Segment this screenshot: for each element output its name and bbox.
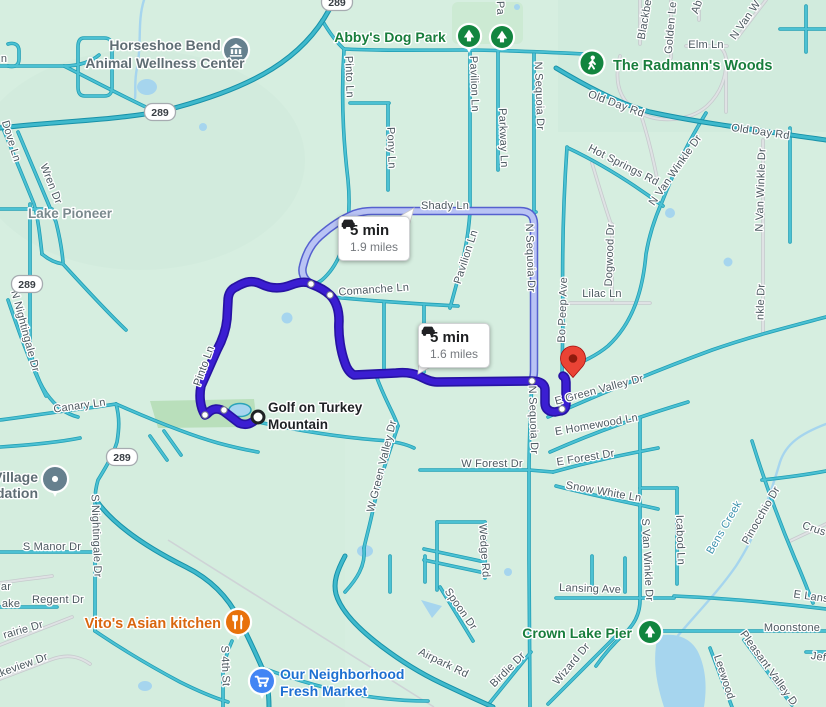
poi-park [489, 24, 515, 50]
street-label-pa: Pa [494, 1, 507, 16]
street-label-birdie-dr: Birdie Dr [488, 650, 528, 690]
street-label-jef: Jef [810, 650, 826, 664]
car-icon [339, 217, 357, 230]
street-label-snow-white-ln: Snow White Ln [565, 479, 643, 504]
svg-text:289: 289 [113, 452, 131, 464]
street-label-dogwood-dr: Dogwood Dr [603, 223, 617, 287]
street-label-s-4th-st: S 4th St [218, 645, 231, 686]
street-label-comanche-ln: Comanche Ln [338, 282, 409, 299]
street-label-w-green-valley-dr: W Green Valley Dr [365, 419, 399, 514]
street-label-regent-dr: Regent Dr [32, 594, 84, 606]
map-svg[interactable]: nDove LnWren DrN Nightingale DrCanary Ln… [0, 0, 826, 707]
street-label-n-sequoia-dr: N Sequoia Dr [526, 385, 540, 454]
street-label-n-sequoia-dr: N Sequoia Dr [532, 61, 546, 130]
street-label-spoon-dr: Spoon Dr [442, 586, 479, 632]
street-label-lansing-ave: Lansing Ave [559, 582, 621, 596]
svg-text:289: 289 [151, 107, 169, 119]
street-label-w-forest-dr: W Forest Dr [461, 458, 523, 470]
street-label-icabod-ln: Icabod Ln [673, 515, 687, 566]
poi-label-our-neighborhood-fresh-market: Our Neighborhood [280, 666, 404, 682]
street-label-s-manor-dr: S Manor Dr [23, 541, 81, 553]
street-label-n-van-winkle-dr: N Van Winkle Dr [754, 148, 769, 232]
car-icon [419, 324, 437, 337]
poi-golf-on-turkey-mountain: Golf on TurkeyMountain [268, 400, 363, 432]
street-label-parkway-ln: Parkway Ln [496, 108, 510, 168]
poi-label-golf-on-turkey-mountain: Golf on Turkey [268, 400, 363, 415]
poi-label-village-foundation: Village [0, 469, 38, 485]
street-label-n: n [1, 53, 7, 65]
park-tree-icon[interactable] [489, 24, 515, 50]
poi-label-golf-on-turkey-mountain: Mountain [268, 417, 328, 432]
street-label-e-lansi: E Lansi [793, 588, 826, 605]
street-label-wedge-rd: Wedge Rd [476, 524, 492, 578]
street-label-pavilion-ln: Pavilion Ln [467, 56, 481, 112]
poi-label-village-foundation: dation [0, 485, 38, 501]
crown-lake-pier-tree-icon[interactable] [637, 619, 663, 645]
route-info-alternate[interactable]: 5 min 1.9 miles [338, 216, 410, 261]
poi-label-abbys-dog-park: Abby's Dog Park [334, 29, 446, 45]
svg-text:289: 289 [18, 279, 36, 291]
poi-lake-pioneer: Lake Pioneer [28, 206, 113, 221]
highway-badge-289: 289 [12, 276, 43, 293]
street-label-n-nightingale-dr: N Nightingale Dr [8, 289, 41, 373]
poi-label-vitos-asian-kitchen: Vito's Asian kitchen [85, 616, 221, 632]
poi-label-our-neighborhood-fresh-market: Fresh Market [280, 683, 367, 699]
highway-badge-289: 289 [145, 104, 176, 121]
the-radmanns-woods-walk-icon[interactable] [578, 49, 605, 76]
street-label-moonstone: Moonstone [764, 622, 820, 634]
street-label-bens-creek: Bens Creek [704, 498, 744, 556]
street-label-leewood: Leewood [711, 653, 737, 701]
poi-label-horseshoe-bend-animal-wellness-center: Horseshoe Bend [109, 37, 220, 53]
highway-badge-289: 289 [107, 449, 138, 466]
street-label-shady-ln: Shady Ln [421, 200, 469, 212]
street-label-pleasant-valley-d: Pleasant Valley D [737, 629, 799, 707]
street-label-pavilion-ln: Pavilion Ln [452, 229, 481, 286]
street-label-nkle-dr: nkle Dr [754, 283, 767, 320]
poi-label-lake-pioneer: Lake Pioneer [28, 206, 113, 221]
highway-badge-289: 289 [322, 0, 353, 11]
poi-label-the-radmanns-woods: The Radmann's Woods [613, 58, 772, 74]
street-label-pinto-ln: Pinto Ln [342, 56, 355, 98]
street-label-elm-ln: Elm Ln [688, 39, 723, 51]
origin-marker[interactable] [252, 411, 264, 423]
alternate-distance: 1.9 miles [350, 240, 398, 254]
poi-label-crown-lake-pier: Crown Lake Pier [522, 625, 632, 641]
street-label-lilac-ln: Lilac Ln [582, 288, 622, 300]
svg-text:289: 289 [328, 0, 346, 9]
street-label-ake: ake [2, 598, 20, 610]
map-canvas[interactable]: nDove LnWren DrN Nightingale DrCanary Ln… [0, 0, 826, 707]
street-label-canary-ln: Canary Ln [53, 396, 107, 415]
street-label-pony-ln: Pony Ln [384, 127, 397, 169]
poi-crown-lake-pier: Crown Lake Pier [522, 619, 663, 645]
route-info-selected[interactable]: 5 min 1.6 miles [418, 323, 490, 368]
street-label-n-sequoia-dr: N Sequoia Dr [523, 223, 537, 292]
selected-distance: 1.6 miles [430, 347, 478, 361]
poi-label-horseshoe-bend-animal-wellness-center: Animal Wellness Center [85, 55, 245, 71]
street-label-bo-peep-ave: Bo Peep Ave [556, 277, 570, 343]
street-label-ar: ar [1, 581, 11, 593]
